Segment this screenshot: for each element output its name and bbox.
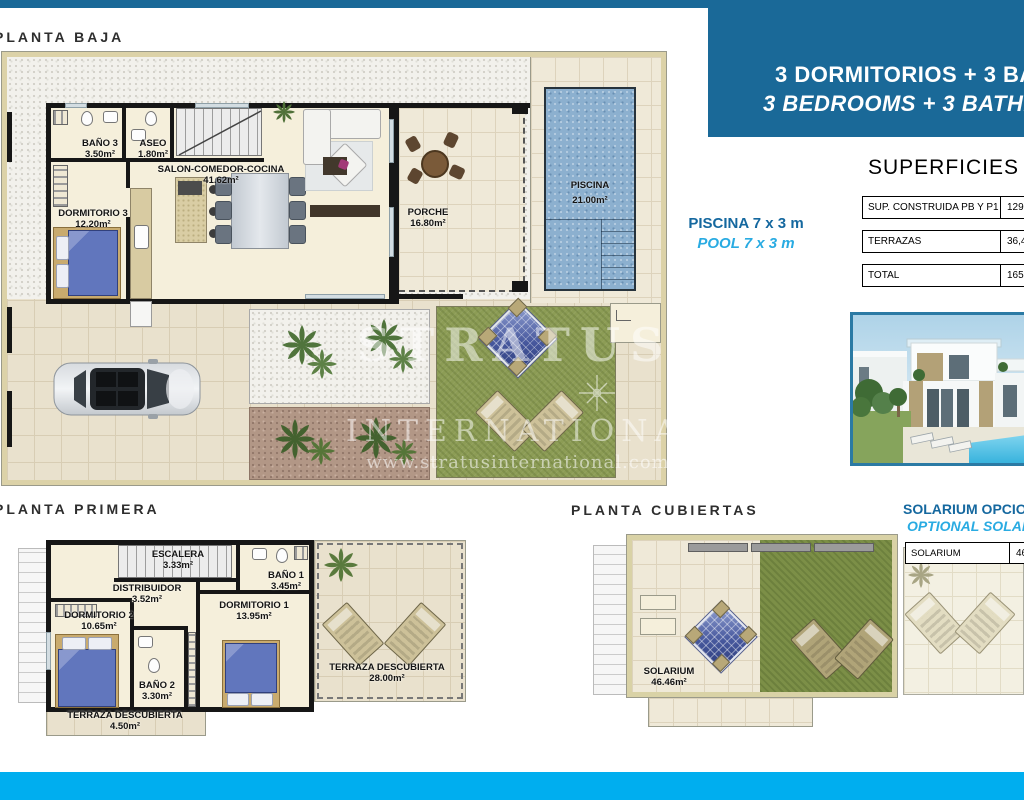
header-title-es: 3 DORMITORIOS + 3 BAÑOS (775, 62, 1024, 88)
villa-photo (850, 312, 1024, 466)
wall (399, 294, 463, 299)
room-label-bano2: BAÑO 2 3.30m² (139, 680, 175, 702)
porch-area (399, 108, 525, 292)
room-label-distribuidor: DISTRIBUIDOR 3.52m² (113, 583, 182, 605)
shaft (188, 632, 196, 707)
pool-steps (601, 219, 635, 289)
title-planta-cubiertas: PLANTA CUBIERTAS (571, 502, 759, 518)
stairs (176, 108, 262, 156)
superficies-row-value: 36,40 (1001, 231, 1024, 252)
superficies-row-value: 165,57 (1001, 265, 1024, 286)
room-name: TERRAZA DESCUBIERTA (67, 710, 183, 721)
wall (122, 108, 126, 158)
wall (236, 545, 240, 594)
room-label-terraza-28: TERRAZA DESCUBIERTA 28.00m² (329, 662, 445, 684)
room-name: DORMITORIO 2 (64, 610, 134, 621)
plant-icon (307, 437, 335, 465)
superficies-row-value: 129,17 (1001, 197, 1024, 218)
superficies-row: TOTAL 165,57 (862, 264, 1024, 287)
window (305, 294, 385, 299)
plant-icon (307, 349, 337, 379)
plant-icon (324, 548, 358, 582)
planta-baja-plan: PISCINA 21.00m² (2, 52, 666, 485)
room-label-piscina: PISCINA 21.00m² (571, 178, 610, 208)
wall (399, 103, 530, 108)
plant-icon (908, 562, 934, 588)
pool-caption-en: POOL 7 x 3 m (697, 235, 794, 252)
room-area: 10.65m² (64, 621, 134, 632)
sink-icon (252, 548, 267, 560)
room-area: 3.45m² (268, 581, 304, 592)
superficies-row-label: SUP. CONSTRUIDA PB Y P1 (863, 197, 1001, 218)
wall (7, 112, 12, 162)
room-area: 3.50m² (82, 149, 118, 160)
room-label-bano1: BAÑO 1 3.45m² (268, 570, 304, 592)
roof-apron (648, 697, 813, 727)
room-area: 3.30m² (139, 691, 175, 702)
room-name: ESCALERA (152, 549, 204, 560)
wall (114, 578, 236, 582)
window (389, 119, 394, 163)
solarium-table-row: SOLARIUM 46,46 (905, 542, 1024, 564)
optional-solarium-area (903, 547, 1024, 695)
superficies-title: SUPERFICIES (868, 156, 1019, 180)
bed-icon (53, 227, 121, 299)
solarium-table-value: 46,46 (1010, 543, 1024, 563)
porch-table (421, 150, 449, 178)
pool-ledge-line (546, 219, 601, 220)
room-label-aseo: ASEO 1.80m² (138, 138, 168, 160)
title-planta-primera: PLANTA PRIMERA (0, 501, 160, 517)
room-name: TERRAZA DESCUBIERTA (329, 662, 445, 673)
kitchen-sink-icon (134, 225, 149, 249)
sun-lounger-icon (904, 592, 965, 655)
chair-icon (289, 201, 306, 220)
stairs-diagonal (177, 109, 263, 157)
planta-cubiertas-plan: SOLARIUM 46.46m² (593, 535, 1024, 735)
room-label-salon: SALON-COMEDOR-COCINA 41.62m² (158, 164, 285, 186)
room-label-dormitorio3: DORMITORIO 3 12.20m² (58, 208, 128, 230)
room-area: 46.46m² (644, 677, 695, 688)
title-planta-baja: PLANTA BAJA (0, 29, 124, 45)
bed-pillow (56, 264, 69, 288)
wall (130, 626, 188, 630)
bed-duvet (68, 230, 118, 296)
bed-pillow (56, 236, 69, 260)
room-name: BAÑO 3 (82, 138, 118, 149)
bed-pillow (251, 693, 273, 706)
toilet-icon (276, 548, 288, 563)
car-icon (52, 357, 202, 421)
plant-icon (389, 345, 417, 373)
toilet-icon (148, 658, 160, 673)
room-name: BAÑO 2 (139, 680, 175, 691)
chair-icon (289, 225, 306, 244)
superficies-row: SUP. CONSTRUIDA PB Y P1 129,17 (862, 196, 1024, 219)
room-label-solarium: SOLARIUM 46.46m² (644, 666, 695, 688)
solarium-caption-en: OPTIONAL SOLARIUM (907, 518, 1024, 534)
room-area: 12.20m² (58, 219, 128, 230)
sink-icon (138, 636, 153, 648)
superficies-row-label: TOTAL (863, 265, 1001, 286)
room-label-dormitorio1: DORMITORIO 1 13.95m² (219, 600, 289, 622)
toilet-icon (81, 111, 93, 126)
room-label-escalera: ESCALERA 3.33m² (152, 549, 204, 571)
bench (640, 618, 676, 635)
villa-photo-image (853, 315, 1024, 463)
wall (7, 391, 12, 447)
room-name: BAÑO 1 (268, 570, 304, 581)
bench (640, 595, 676, 610)
wall (126, 158, 130, 188)
outdoor-kitchen (610, 303, 661, 343)
wall (196, 582, 200, 707)
shower (294, 546, 308, 560)
railing-bar (688, 543, 748, 552)
room-name: DORMITORIO 1 (219, 600, 289, 611)
bed-icon (55, 634, 119, 708)
shower (53, 110, 68, 125)
room-area: 1.80m² (138, 149, 168, 160)
exterior-stairs (18, 548, 48, 703)
superficies-row: TERRAZAS 36,40 (862, 230, 1024, 253)
window (46, 632, 51, 670)
solarium-table-label: SOLARIUM (906, 543, 1010, 563)
toilet-icon (145, 111, 157, 126)
bed-pillow (62, 637, 86, 650)
sun-lounger-icon (954, 592, 1015, 655)
chair-icon (215, 225, 232, 244)
sink-icon (103, 111, 118, 123)
room-area: 3.33m² (152, 560, 204, 571)
bed-duvet (225, 643, 277, 693)
room-name: SALON-COMEDOR-COCINA (158, 164, 285, 175)
tv-bench (310, 205, 380, 217)
bottom-accent-bar (0, 772, 1024, 800)
chair-icon (215, 201, 232, 220)
room-area: 3.52m² (113, 594, 182, 605)
room-label-porche: PORCHE 16.80m² (408, 207, 449, 229)
room-label-dormitorio2: DORMITORIO 2 10.65m² (64, 610, 134, 632)
header-title-en: 3 BEDROOMS + 3 BATHROOMS (763, 91, 1024, 117)
room-area: 13.95m² (219, 611, 289, 622)
room-name: PORCHE (408, 207, 449, 218)
header-banner: 3 DORMITORIOS + 3 BAÑOS 3 BEDROOMS + 3 B… (708, 0, 1024, 137)
room-area: 21.00m² (571, 193, 610, 208)
plant-icon (391, 439, 417, 465)
brochure-page: 3 DORMITORIOS + 3 BAÑOS 3 BEDROOMS + 3 B… (0, 0, 1024, 800)
bed-icon (222, 640, 280, 708)
room-name: DORMITORIO 3 (58, 208, 128, 219)
room-name: SOLARIUM (644, 666, 695, 677)
window (389, 207, 394, 257)
appliance (130, 301, 152, 327)
room-label-bano3: BAÑO 3 3.50m² (82, 138, 118, 160)
room-area: 28.00m² (329, 673, 445, 684)
planta-primera-plan: ESCALERA 3.33m² DISTRIBUIDOR 3.52m² BAÑO… (18, 540, 470, 736)
porch-column (512, 281, 528, 292)
bed-duvet (58, 649, 116, 707)
railing-bar (814, 543, 874, 552)
solarium-caption-es: SOLARIUM OPCIONAL (903, 501, 1024, 517)
room-area: 41.62m² (158, 175, 285, 186)
room-name: DISTRIBUIDOR (113, 583, 182, 594)
pool-caption-es: PISCINA 7 x 3 m (688, 215, 803, 232)
room-area: 16.80m² (408, 218, 449, 229)
plant-icon (273, 101, 295, 123)
window (65, 103, 87, 108)
porch-column (512, 103, 528, 114)
room-area: 4.50m² (67, 721, 183, 732)
bed-pillow (88, 637, 112, 650)
room-label-terraza-450: TERRAZA DESCUBIERTA 4.50m² (67, 710, 183, 732)
wall (7, 307, 12, 353)
superficies-row-label: TERRAZAS (863, 231, 1001, 252)
bed-pillow (227, 693, 249, 706)
wardrobe (53, 165, 68, 207)
chair-icon (289, 177, 306, 196)
room-name: ASEO (138, 138, 168, 149)
room-name: PISCINA (571, 178, 610, 193)
railing-bar (751, 543, 811, 552)
wall (170, 108, 174, 158)
outdoor-kitchen-mark (616, 310, 631, 321)
exterior-stairs (593, 545, 627, 695)
